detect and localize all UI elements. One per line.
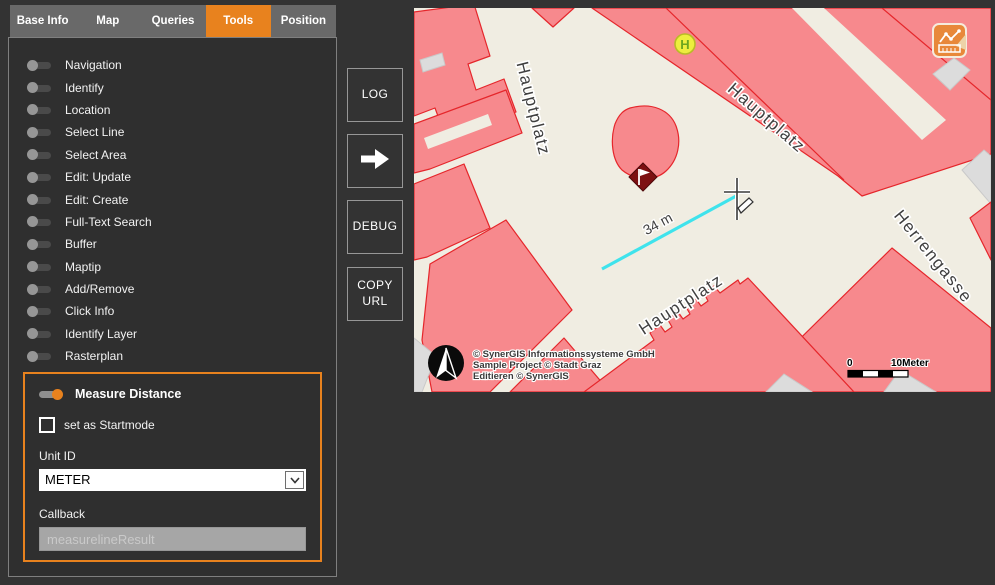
toggle-off-icon[interactable] bbox=[27, 305, 52, 318]
tool-item-maptip[interactable]: Maptip bbox=[27, 256, 328, 278]
tool-item-label: Location bbox=[65, 103, 110, 117]
toggle-off-icon[interactable] bbox=[27, 238, 52, 251]
tab-tools[interactable]: Tools bbox=[206, 5, 271, 37]
north-compass-icon bbox=[428, 345, 464, 381]
tool-item-label: Buffer bbox=[65, 237, 97, 251]
unit-id-label: Unit ID bbox=[39, 449, 306, 463]
debug-button[interactable]: DEBUG bbox=[347, 200, 403, 254]
toggle-off-icon[interactable] bbox=[27, 148, 52, 161]
callback-label: Callback bbox=[39, 507, 306, 521]
tool-item-label: Edit: Create bbox=[65, 193, 128, 207]
tool-item-label: Identify Layer bbox=[65, 327, 137, 341]
log-button[interactable]: LOG bbox=[347, 68, 403, 122]
tool-toggle-list: Navigation Identify Location Select Line… bbox=[27, 54, 328, 367]
toggle-off-icon[interactable] bbox=[27, 103, 52, 116]
map-canvas[interactable]: Hauptplatz Hauptplatz Herrengasse Hauptp… bbox=[414, 8, 991, 392]
tool-item-label: Select Area bbox=[65, 148, 126, 162]
tool-item-buffer[interactable]: Buffer bbox=[27, 233, 328, 255]
tool-item-identify[interactable]: Identify bbox=[27, 76, 328, 98]
attribution-line: © SynerGIS Informationssysteme GmbH bbox=[473, 349, 655, 360]
tram-stop-marker: H bbox=[675, 34, 695, 54]
map-svg: Hauptplatz Hauptplatz Herrengasse Hauptp… bbox=[414, 8, 991, 392]
startmode-label: set as Startmode bbox=[64, 418, 155, 432]
arrow-right-icon bbox=[360, 146, 390, 177]
tool-item-label: Edit: Update bbox=[65, 170, 131, 184]
tab-bar: Base Info Map Queries Tools Position bbox=[10, 5, 336, 37]
tool-item-identify-layer[interactable]: Identify Layer bbox=[27, 323, 328, 345]
toggle-off-icon[interactable] bbox=[27, 327, 52, 340]
toggle-off-icon[interactable] bbox=[27, 81, 52, 94]
tab-base-info[interactable]: Base Info bbox=[10, 5, 75, 37]
toggle-off-icon[interactable] bbox=[27, 171, 52, 184]
tool-item-label: Add/Remove bbox=[65, 282, 134, 296]
measure-distance-title: Measure Distance bbox=[75, 387, 181, 401]
toggle-off-icon[interactable] bbox=[27, 215, 52, 228]
chevron-down-icon[interactable] bbox=[285, 471, 304, 489]
tool-item-label: Select Line bbox=[65, 125, 124, 139]
tool-item-click-info[interactable]: Click Info bbox=[27, 300, 328, 322]
tool-item-label: Identify bbox=[65, 81, 104, 95]
tab-queries[interactable]: Queries bbox=[140, 5, 205, 37]
forward-button[interactable] bbox=[347, 134, 403, 188]
attribution-line: Sample Project © Stadt Graz bbox=[473, 360, 602, 371]
tool-item-full-text-search[interactable]: Full-Text Search bbox=[27, 211, 328, 233]
toggle-on-icon[interactable] bbox=[39, 388, 64, 401]
toggle-off-icon[interactable] bbox=[27, 260, 52, 273]
callback-input[interactable] bbox=[39, 527, 306, 551]
copy-url-button[interactable]: COPY URL bbox=[347, 267, 403, 321]
startmode-row[interactable]: set as Startmode bbox=[39, 417, 306, 433]
measure-distance-panel: Measure Distance set as Startmode Unit I… bbox=[23, 372, 322, 562]
tool-item-edit-create[interactable]: Edit: Create bbox=[27, 188, 328, 210]
toggle-off-icon[interactable] bbox=[27, 283, 52, 296]
toggle-off-icon[interactable] bbox=[27, 59, 52, 72]
tool-item-label: Rasterplan bbox=[65, 349, 123, 363]
tool-item-label: Navigation bbox=[65, 58, 122, 72]
tool-item-add-remove[interactable]: Add/Remove bbox=[27, 278, 328, 300]
tools-panel: Navigation Identify Location Select Line… bbox=[8, 37, 337, 577]
tool-item-label: Click Info bbox=[65, 304, 114, 318]
unit-select[interactable]: METER bbox=[39, 469, 306, 491]
tool-item-rasterplan[interactable]: Rasterplan bbox=[27, 345, 328, 367]
tool-item-label: Full-Text Search bbox=[65, 215, 152, 229]
toggle-off-icon[interactable] bbox=[27, 350, 52, 363]
tool-item-navigation[interactable]: Navigation bbox=[27, 54, 328, 76]
tool-item-label: Maptip bbox=[65, 260, 101, 274]
tram-stop-letter: H bbox=[680, 37, 689, 52]
tab-position[interactable]: Position bbox=[271, 5, 336, 37]
tab-map[interactable]: Map bbox=[75, 5, 140, 37]
scale-max-label: 10Meter bbox=[891, 358, 929, 369]
toggle-off-icon[interactable] bbox=[27, 193, 52, 206]
toggle-off-icon[interactable] bbox=[27, 126, 52, 139]
startmode-checkbox[interactable] bbox=[39, 417, 55, 433]
tool-item-select-area[interactable]: Select Area bbox=[27, 144, 328, 166]
tool-item-location[interactable]: Location bbox=[27, 99, 328, 121]
scale-min-label: 0 bbox=[847, 358, 853, 369]
tool-item-select-line[interactable]: Select Line bbox=[27, 121, 328, 143]
attribution-line: Editieren © SynerGIS bbox=[473, 371, 569, 382]
tool-item-edit-update[interactable]: Edit: Update bbox=[27, 166, 328, 188]
unit-select-value: METER bbox=[40, 470, 305, 490]
measure-chart-button[interactable] bbox=[933, 24, 966, 57]
